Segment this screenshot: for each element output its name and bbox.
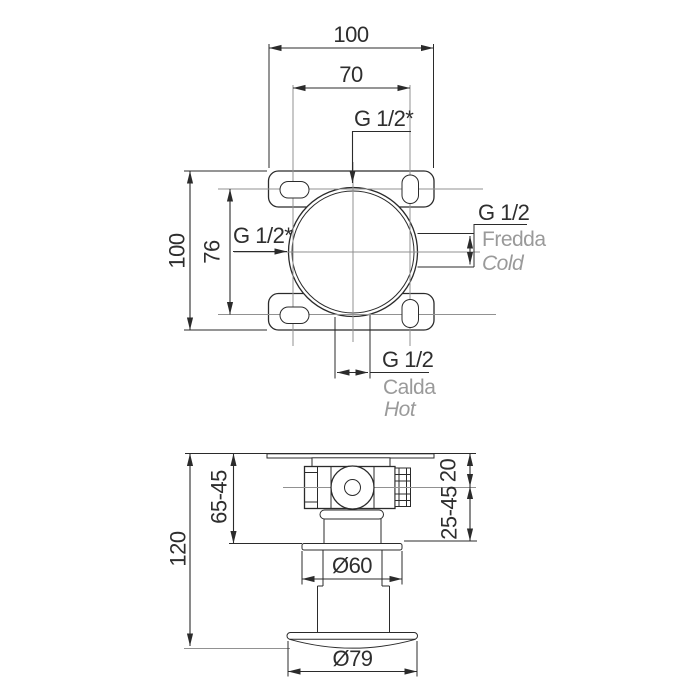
slot-top-left	[280, 182, 309, 199]
dim-label-left-inner: 76	[199, 240, 224, 264]
thread-top-label: G 1/2*	[354, 106, 414, 131]
cold-connection: G 1/2 Fredda Cold	[418, 200, 547, 275]
dim-flange: Ø60	[302, 551, 402, 585]
thread-left-label: G 1/2*	[233, 223, 293, 248]
plan-view: 100 70 G 1/2* 100 76 G 1/2*	[164, 22, 546, 421]
thread-left-callout: G 1/2*	[233, 223, 293, 252]
hot-label-en: Hot	[384, 398, 417, 421]
dim-label-left-range: 65-45	[206, 470, 231, 524]
dim-label-right-top: 20	[435, 459, 460, 483]
cold-label-it: Fredda	[482, 228, 546, 251]
dim-label-top-inner: 70	[339, 62, 363, 87]
dim-label-flange: Ø60	[332, 553, 372, 578]
technical-drawing: 100 70 G 1/2* 100 76 G 1/2*	[0, 0, 700, 700]
slot-bottom-right	[402, 300, 419, 328]
dim-label-left-outer: 100	[164, 233, 189, 268]
dim-label-top-outer: 100	[333, 22, 368, 47]
section-view: 120 65-45 20 25-45 Ø60 Ø79	[165, 454, 477, 677]
collar-nut	[320, 510, 384, 519]
cartridge-circle	[331, 466, 374, 509]
hot-thread-label: G 1/2	[382, 347, 434, 372]
drawing-canvas: 100 70 G 1/2* 100 76 G 1/2*	[0, 0, 700, 700]
slot-top-right	[402, 175, 419, 204]
dim-escutcheon: Ø79	[288, 641, 417, 677]
dim-label-escutcheon: Ø79	[332, 646, 372, 671]
cold-thread-label: G 1/2	[478, 200, 530, 225]
dim-top-outer: 100	[269, 22, 434, 168]
mounting-plate	[312, 458, 390, 467]
dim-label-total: 120	[165, 531, 190, 566]
flange-plate	[302, 544, 402, 551]
hot-label-it: Calda	[383, 376, 436, 399]
dim-label-right-range: 25-45	[436, 486, 461, 540]
dim-left-inner: 76	[199, 189, 230, 315]
dim-top-inner: 70	[293, 62, 410, 88]
hot-connection: G 1/2 Calda Hot	[335, 315, 436, 421]
dim-depth-range-left: 65-45	[206, 454, 302, 544]
slot-bottom-left	[280, 307, 309, 324]
dim-right-stack: 20 25-45	[404, 454, 477, 542]
escutcheon-rim	[287, 633, 418, 640]
cold-label-en: Cold	[482, 252, 525, 275]
